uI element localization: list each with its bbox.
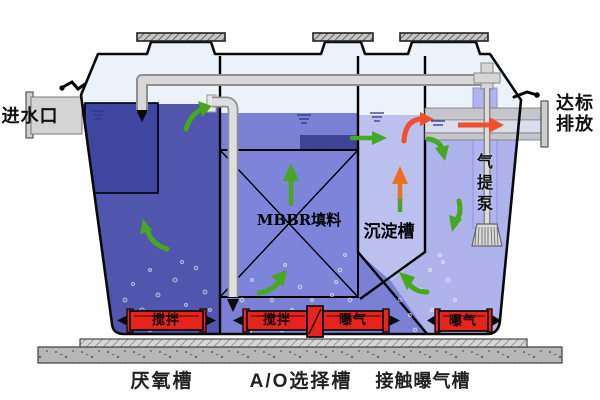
label-anaerobic-zone: 厌氧槽 [116, 371, 208, 393]
treatment-tank-diagram: 进水口 达标 排放 MBBR填料 沉淀槽 气 提 泵 厌氧槽 A/O选择槽 接触… [0, 0, 600, 400]
label-device-aerate-2: 曝气 [437, 314, 489, 329]
manhole-cover [400, 33, 488, 41]
manhole-covers [137, 33, 488, 41]
label-discharge: 达标 排放 [552, 93, 598, 134]
label-sedimentation-tank: 沉淀槽 [357, 222, 421, 242]
outlet-flange [541, 101, 548, 147]
label-device-stir-1: 搅拌 [140, 313, 192, 328]
label-discharge-line1: 达标 [552, 93, 598, 114]
label-device-stir-2: 搅拌 [251, 313, 303, 328]
manhole-cover [137, 33, 225, 41]
label-inlet: 进水口 [1, 106, 59, 127]
label-device-aerate-1: 曝气 [327, 313, 379, 328]
label-ao-selector-zone: A/O选择槽 [245, 371, 357, 393]
inlet-baffle-box [85, 103, 158, 193]
label-discharge-line2: 排放 [552, 114, 598, 135]
ground-foundation [38, 339, 562, 363]
label-contact-aeration-zone: 接触曝气槽 [367, 371, 479, 392]
label-airlift-pump: 气 提 泵 [476, 152, 494, 215]
label-mbbr-media: MBBR填料 [254, 212, 344, 229]
transfer-port [300, 135, 358, 149]
diagram-canvas [0, 0, 600, 400]
manhole-cover [313, 33, 373, 41]
